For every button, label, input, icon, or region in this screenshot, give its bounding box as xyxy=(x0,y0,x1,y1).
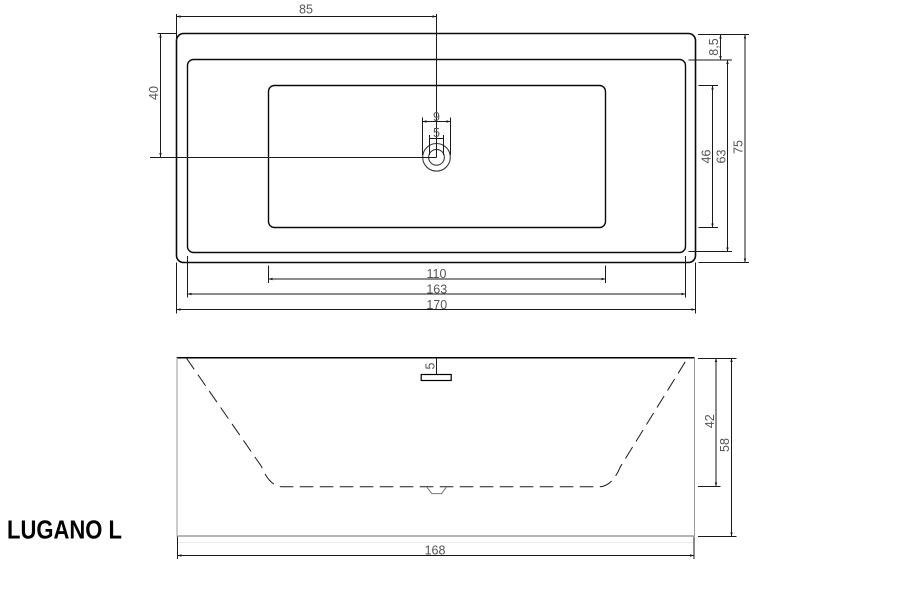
svg-text:75: 75 xyxy=(732,140,746,154)
svg-text:8,5: 8,5 xyxy=(707,38,721,55)
svg-text:42: 42 xyxy=(703,414,717,428)
svg-text:40: 40 xyxy=(147,86,161,100)
svg-text:LUGANO L: LUGANO L xyxy=(7,517,122,545)
svg-text:46: 46 xyxy=(700,150,714,164)
svg-text:163: 163 xyxy=(426,282,447,296)
svg-text:170: 170 xyxy=(426,298,447,312)
svg-text:110: 110 xyxy=(427,267,447,281)
svg-text:5: 5 xyxy=(424,362,438,369)
svg-text:168: 168 xyxy=(425,544,446,558)
svg-text:85: 85 xyxy=(299,3,313,17)
svg-text:9: 9 xyxy=(433,110,440,124)
svg-text:63: 63 xyxy=(715,150,729,164)
svg-text:5: 5 xyxy=(433,126,440,140)
svg-text:58: 58 xyxy=(718,438,732,452)
